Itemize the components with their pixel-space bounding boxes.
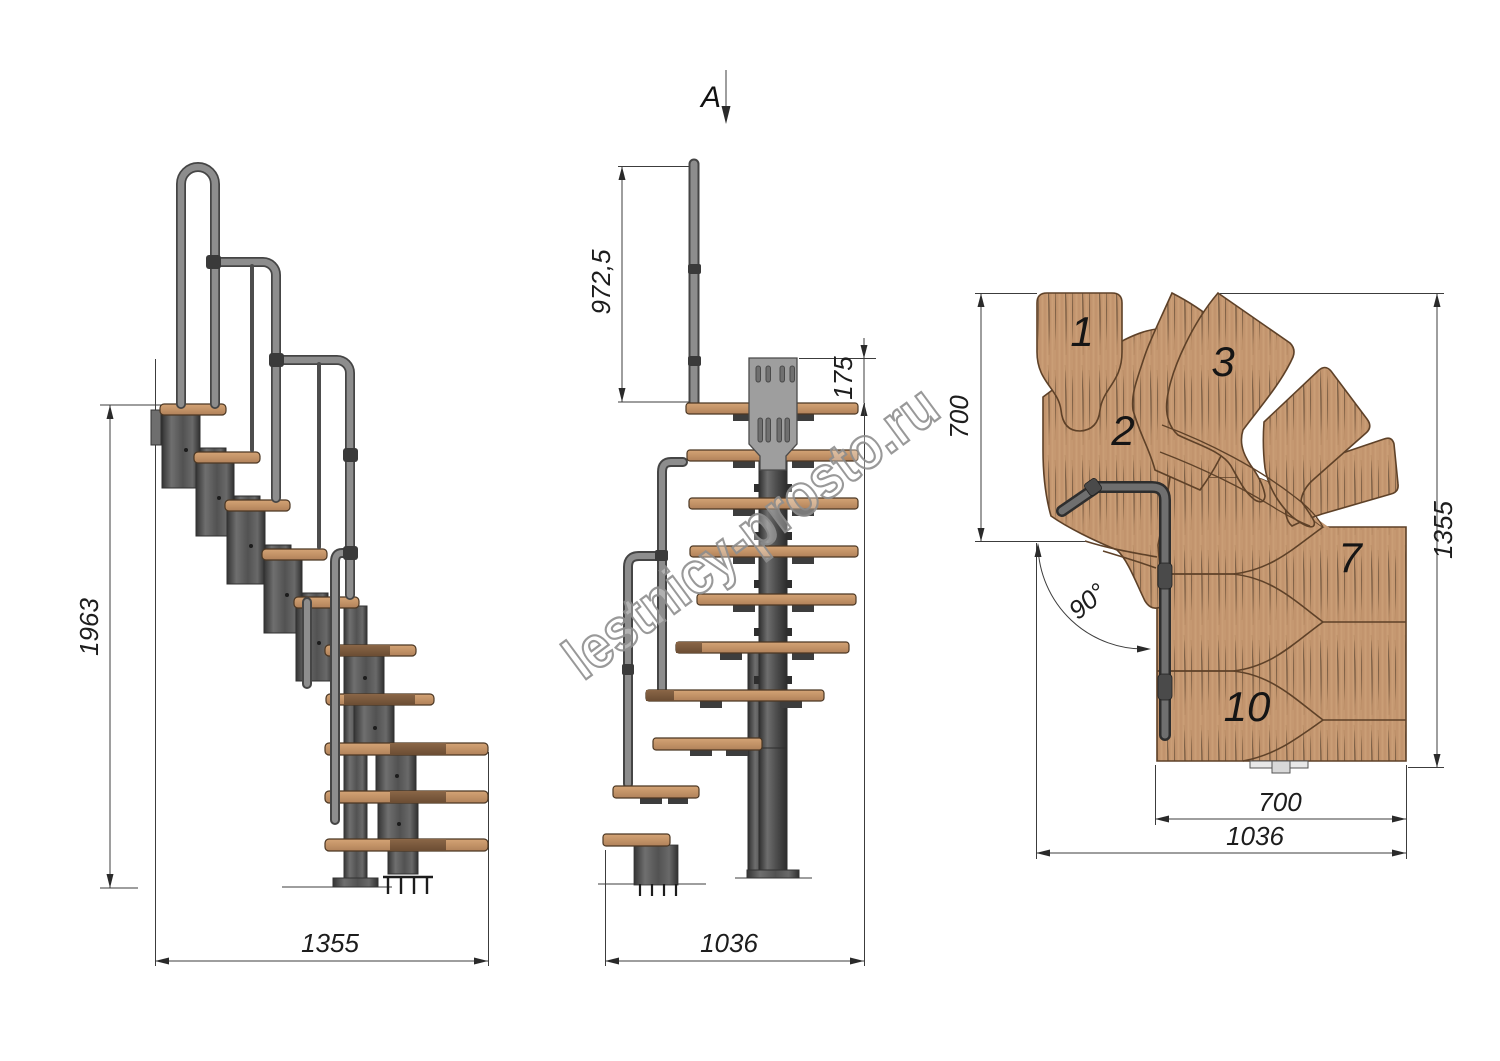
- svg-text:3: 3: [1211, 338, 1234, 385]
- svg-text:2: 2: [1110, 407, 1134, 454]
- svg-text:700: 700: [1258, 787, 1302, 817]
- svg-text:1355: 1355: [301, 928, 359, 958]
- svg-text:1355: 1355: [1428, 501, 1458, 559]
- svg-text:1: 1: [1070, 308, 1093, 355]
- svg-text:1963: 1963: [74, 598, 104, 656]
- svg-text:1036: 1036: [700, 928, 758, 958]
- svg-text:972,5: 972,5: [586, 249, 616, 315]
- svg-text:175: 175: [828, 356, 858, 400]
- svg-text:700: 700: [944, 395, 974, 439]
- svg-text:1036: 1036: [1226, 821, 1284, 851]
- svg-text:A: A: [699, 81, 721, 114]
- svg-text:7: 7: [1338, 534, 1363, 581]
- svg-text:10: 10: [1224, 683, 1271, 730]
